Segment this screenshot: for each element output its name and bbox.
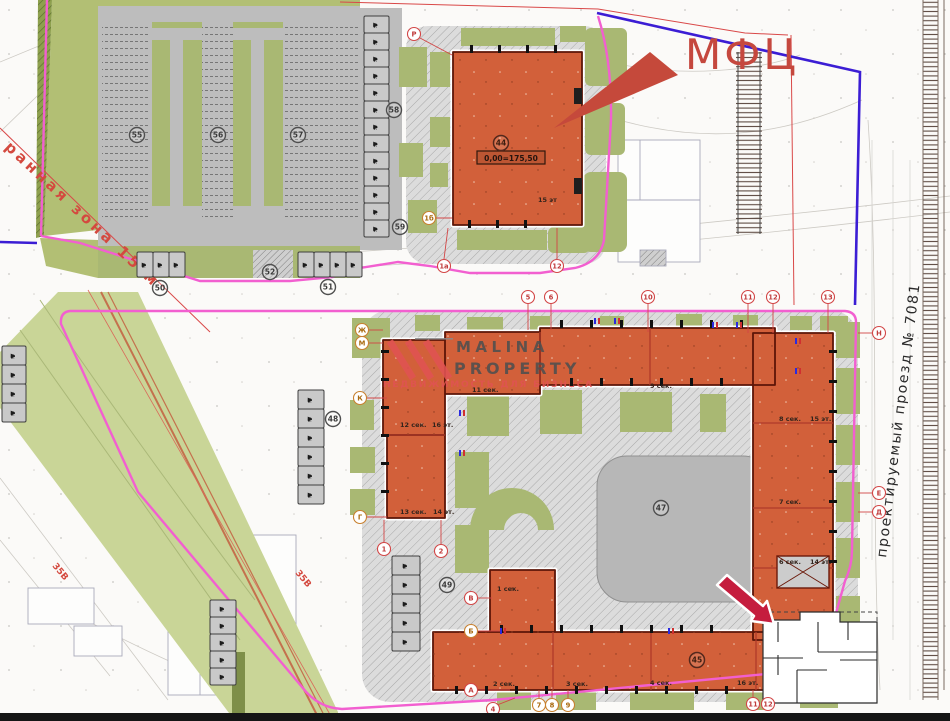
- parking-stall: ♠: [298, 485, 324, 504]
- bottom-black-bar: [0, 713, 950, 721]
- plan-text-label: 13 сек.: [400, 508, 426, 516]
- entrance-tick: [695, 686, 698, 694]
- entrance-tick: [829, 380, 837, 383]
- entrance-tick: [680, 320, 683, 328]
- entrance-tick: [590, 320, 593, 328]
- entrance-tick: [829, 500, 837, 503]
- utility-tick-blue: [668, 628, 670, 634]
- plan-text-label: 16 эт.: [737, 679, 758, 687]
- entrance-tick: [524, 220, 527, 228]
- utility-tick-red: [618, 318, 620, 324]
- site-plan: МФЦ MALINA PROPERTY НЕДВИЖИМОСТЬ ДЛЯ БИЗ…: [0, 0, 950, 721]
- parking-stall: ♠: [298, 428, 324, 447]
- marker-label: 55: [132, 131, 142, 140]
- parking-stall: ♠: [364, 203, 389, 220]
- entrance-tick: [560, 625, 563, 633]
- plan-text-label: 9 сек.: [650, 382, 672, 390]
- parking-stall: ♠: [2, 365, 26, 384]
- marker-label: 11: [748, 700, 758, 708]
- marker-label: 12: [768, 293, 778, 301]
- entrance-tick: [515, 686, 518, 694]
- site-number-marker: 45: [690, 653, 705, 668]
- entrance-tick: [381, 462, 389, 465]
- plan-text-label: 11 сек.: [472, 386, 498, 394]
- site-plan-canvas: МФЦ MALINA PROPERTY НЕДВИЖИМОСТЬ ДЛЯ БИЗ…: [0, 0, 950, 721]
- parking-stall: ♠: [298, 447, 324, 466]
- entrance-tick: [829, 530, 837, 533]
- entrance-tick: [829, 410, 837, 413]
- entrance-tick: [381, 490, 389, 493]
- site-number-marker: 56: [211, 128, 226, 143]
- axis-marker: 9: [562, 699, 575, 712]
- axis-marker: 12: [551, 260, 564, 273]
- utility-tick-blue: [736, 322, 738, 328]
- marker-label: Н: [876, 329, 882, 337]
- utility-tick-red: [716, 322, 718, 328]
- elevation-label: 0,00=175,50: [484, 154, 538, 163]
- entrance-tick: [650, 625, 653, 633]
- site-number-marker: 59: [393, 220, 408, 235]
- entrance-tick: [630, 378, 633, 386]
- marker-label: К: [357, 394, 363, 402]
- marker-label: Ж: [358, 326, 367, 334]
- utility-tick-red: [672, 628, 674, 634]
- entrance-tick: [620, 625, 623, 633]
- utility-tick-blue: [795, 368, 797, 374]
- site-number-marker: 49: [440, 578, 455, 593]
- plan-text-label: 14 эт.: [433, 508, 454, 516]
- site-number-marker: 51: [321, 280, 336, 295]
- mfc-callout-label: МФЦ: [685, 30, 799, 79]
- axis-marker: Р: [408, 28, 421, 41]
- marker-label: Г: [358, 513, 363, 521]
- site-number-marker: 44: [494, 136, 509, 151]
- marker-label: 1а: [439, 262, 449, 270]
- marker-label: 9: [566, 701, 571, 709]
- axis-marker: 2: [435, 545, 448, 558]
- marker-label: 13: [823, 293, 833, 301]
- utility-tick-blue: [614, 318, 616, 324]
- parking-stall: ♠: [364, 101, 389, 118]
- entrance-tick: [605, 686, 608, 694]
- utility-tick-red: [799, 368, 801, 374]
- site-number-marker: 57: [291, 128, 306, 143]
- marker-label: Б: [468, 627, 473, 635]
- entrance-tick: [545, 686, 548, 694]
- axis-marker: 1: [378, 543, 391, 556]
- marker-label: 49: [442, 581, 452, 590]
- plan-text-label: 8 сек.: [779, 415, 801, 423]
- marker-label: 12: [552, 262, 562, 270]
- parking-stall: ♠: [364, 50, 389, 67]
- utility-tick-blue: [459, 410, 461, 416]
- axis-marker: В: [465, 592, 478, 605]
- utility-tick-blue: [459, 450, 461, 456]
- parking-stall: ♠: [2, 346, 26, 365]
- entrance-tick: [381, 350, 389, 353]
- site-number-marker: 50: [153, 281, 168, 296]
- axis-marker: 12: [767, 291, 780, 304]
- axis-marker: 13: [822, 291, 835, 304]
- marker-label: 52: [265, 268, 275, 277]
- plan-text-label: 7 сек.: [779, 498, 801, 506]
- marker-label: 45: [692, 656, 702, 665]
- entrance-tick: [725, 686, 728, 694]
- marker-label: 10: [643, 293, 653, 301]
- utility-tick-red: [504, 628, 506, 634]
- marker-label: 47: [656, 504, 666, 513]
- parking-stall: ♠: [210, 600, 236, 617]
- axis-marker: Г: [354, 511, 367, 524]
- parking-stall: ♠: [392, 575, 420, 594]
- parking-stall: ♠: [2, 403, 26, 422]
- entrance-tick: [455, 686, 458, 694]
- marker-label: 51: [323, 283, 333, 292]
- entrance-tick: [468, 220, 471, 228]
- watermark-brand-bottom: PROPERTY: [454, 359, 580, 378]
- site-number-marker: 58: [387, 103, 402, 118]
- entrance-tick: [710, 625, 713, 633]
- site-number-marker: 48: [326, 412, 341, 427]
- axis-marker: М: [356, 337, 369, 350]
- plan-text-label: 4 сек.: [650, 679, 672, 687]
- parking-stall: ♠: [364, 118, 389, 135]
- site-number-marker: 52: [263, 265, 278, 280]
- marker-label: 11: [743, 293, 753, 301]
- parking-stall: ♠: [346, 252, 362, 277]
- entrance-tick: [635, 686, 638, 694]
- axis-marker: 11: [742, 291, 755, 304]
- marker-label: В: [468, 594, 473, 602]
- plan-text-label: 14 эт.: [810, 558, 831, 566]
- entrance-tick: [381, 406, 389, 409]
- plan-text-label: 2 сек.: [493, 680, 515, 688]
- parking-stall: ♠: [364, 169, 389, 186]
- site-number-marker: 47: [654, 501, 669, 516]
- marker-label: 12: [763, 700, 773, 708]
- entrance-tick: [829, 440, 837, 443]
- parking-stall: ♠: [392, 556, 420, 575]
- marker-label: М: [359, 339, 366, 347]
- entrance-tick: [470, 45, 473, 53]
- parking-stall: ♠: [169, 252, 185, 277]
- entrance-tick: [496, 220, 499, 228]
- parking-stall: ♠: [210, 634, 236, 651]
- parking-stall: ♠: [392, 594, 420, 613]
- utility-tick-blue: [500, 628, 502, 634]
- parking-stall: ♠: [364, 220, 389, 237]
- marker-label: 2: [439, 547, 444, 555]
- marker-label: 1б: [424, 214, 434, 222]
- axis-marker: Б: [465, 625, 478, 638]
- parking-stall: ♠: [2, 384, 26, 403]
- parking-lot: [98, 6, 402, 278]
- entrance-tick: [498, 45, 501, 53]
- parking-stall: ♠: [298, 409, 324, 428]
- utility-tick-red: [799, 338, 801, 344]
- axis-marker: Е: [873, 487, 886, 500]
- axis-marker: 10: [642, 291, 655, 304]
- site-number-marker: 55: [130, 128, 145, 143]
- utility-tick-blue: [712, 322, 714, 328]
- parking-stall: ♠: [314, 252, 330, 277]
- plan-text-label: 1 сек.: [497, 585, 519, 593]
- entrance-tick: [620, 320, 623, 328]
- utility-tick-red: [463, 450, 465, 456]
- unit-floorplan-overlay: [763, 612, 877, 703]
- marker-label: 1: [382, 545, 387, 553]
- marker-label: 44: [496, 139, 506, 148]
- parking-stall: ♠: [364, 186, 389, 203]
- courtyard-plaza: [597, 456, 773, 602]
- parking-stall: ♠: [364, 135, 389, 152]
- parking-stall: ♠: [298, 252, 314, 277]
- marker-label: 6: [549, 293, 554, 301]
- entrance-tick: [554, 45, 557, 53]
- plan-text-label: 16 эт.: [432, 421, 453, 429]
- retaining-wall-band: [736, 52, 762, 234]
- parking-stall: ♠: [153, 252, 169, 277]
- marker-label: 59: [395, 223, 405, 232]
- axis-marker: А: [465, 684, 478, 697]
- axis-marker: 1а: [438, 260, 451, 273]
- axis-marker: 12: [762, 698, 775, 711]
- entrance-tick: [530, 625, 533, 633]
- utility-tick-red: [740, 322, 742, 328]
- marker-label: 5: [526, 293, 531, 301]
- axis-marker: 1б: [423, 212, 436, 225]
- parking-stall: ♠: [364, 33, 389, 50]
- entrance-tick: [650, 320, 653, 328]
- entrance-tick: [829, 470, 837, 473]
- plan-text-label: 15 эт: [538, 196, 557, 204]
- marker-label: 58: [389, 106, 399, 115]
- marker-label: 48: [328, 415, 338, 424]
- axis-marker: Ж: [356, 324, 369, 337]
- watermark-brand-top: MALINA: [456, 338, 549, 356]
- entrance-tick: [381, 434, 389, 437]
- parking-stall: ♠: [298, 390, 324, 409]
- entrance-tick: [590, 625, 593, 633]
- entrance-tick: [680, 625, 683, 633]
- marker-label: А: [468, 686, 474, 694]
- entrance-tick: [600, 378, 603, 386]
- plan-text-label: 6 сек.: [779, 558, 801, 566]
- axis-marker: 11: [747, 698, 760, 711]
- parking-stall: ♠: [364, 152, 389, 169]
- parking-stall: ♠: [330, 252, 346, 277]
- utility-tick-blue: [795, 338, 797, 344]
- parking-stall: ♠: [364, 67, 389, 84]
- plan-text-label: 3 сек.: [566, 680, 588, 688]
- axis-marker: 5: [522, 291, 535, 304]
- entrance-tick: [570, 378, 573, 386]
- parking-stall: ♠: [210, 651, 236, 668]
- entrance-tick: [829, 350, 837, 353]
- plan-text-label: 15 эт.: [810, 415, 831, 423]
- marker-label: 8: [550, 701, 555, 709]
- entrance-tick: [485, 686, 488, 694]
- axis-marker: 7: [533, 699, 546, 712]
- marker-label: 4: [491, 705, 496, 713]
- plan-text-label: 12 сек.: [400, 421, 426, 429]
- parking-stall: ♠: [298, 466, 324, 485]
- utility-tick-blue: [594, 318, 596, 324]
- parking-stall: ♠: [210, 617, 236, 634]
- axis-marker: Д: [873, 506, 886, 519]
- marker-label: 57: [293, 131, 303, 140]
- axis-marker: К: [354, 392, 367, 405]
- marker-label: 50: [155, 284, 165, 293]
- entrance-tick: [381, 378, 389, 381]
- marker-label: Д: [876, 508, 882, 516]
- axis-marker: 6: [545, 291, 558, 304]
- utility-tick-red: [463, 410, 465, 416]
- parking-stall: ♠: [137, 252, 153, 277]
- entrance-tick: [526, 45, 529, 53]
- parking-stall: ♠: [364, 84, 389, 101]
- entrance-tick: [665, 686, 668, 694]
- axis-marker: Н: [873, 327, 886, 340]
- parking-stall: ♠: [392, 613, 420, 632]
- marker-label: 7: [537, 701, 542, 709]
- parking-stall: ♠: [210, 668, 236, 685]
- marker-label: Е: [877, 489, 882, 497]
- entrance-tick: [690, 378, 693, 386]
- parking-stall: ♠: [392, 632, 420, 651]
- axis-marker: 8: [546, 699, 559, 712]
- utility-tick-red: [598, 318, 600, 324]
- entrance-tick: [560, 320, 563, 328]
- parking-stall: ♠: [364, 16, 389, 33]
- marker-label: 56: [213, 131, 223, 140]
- marker-label: Р: [412, 30, 417, 38]
- entrance-tick: [720, 378, 723, 386]
